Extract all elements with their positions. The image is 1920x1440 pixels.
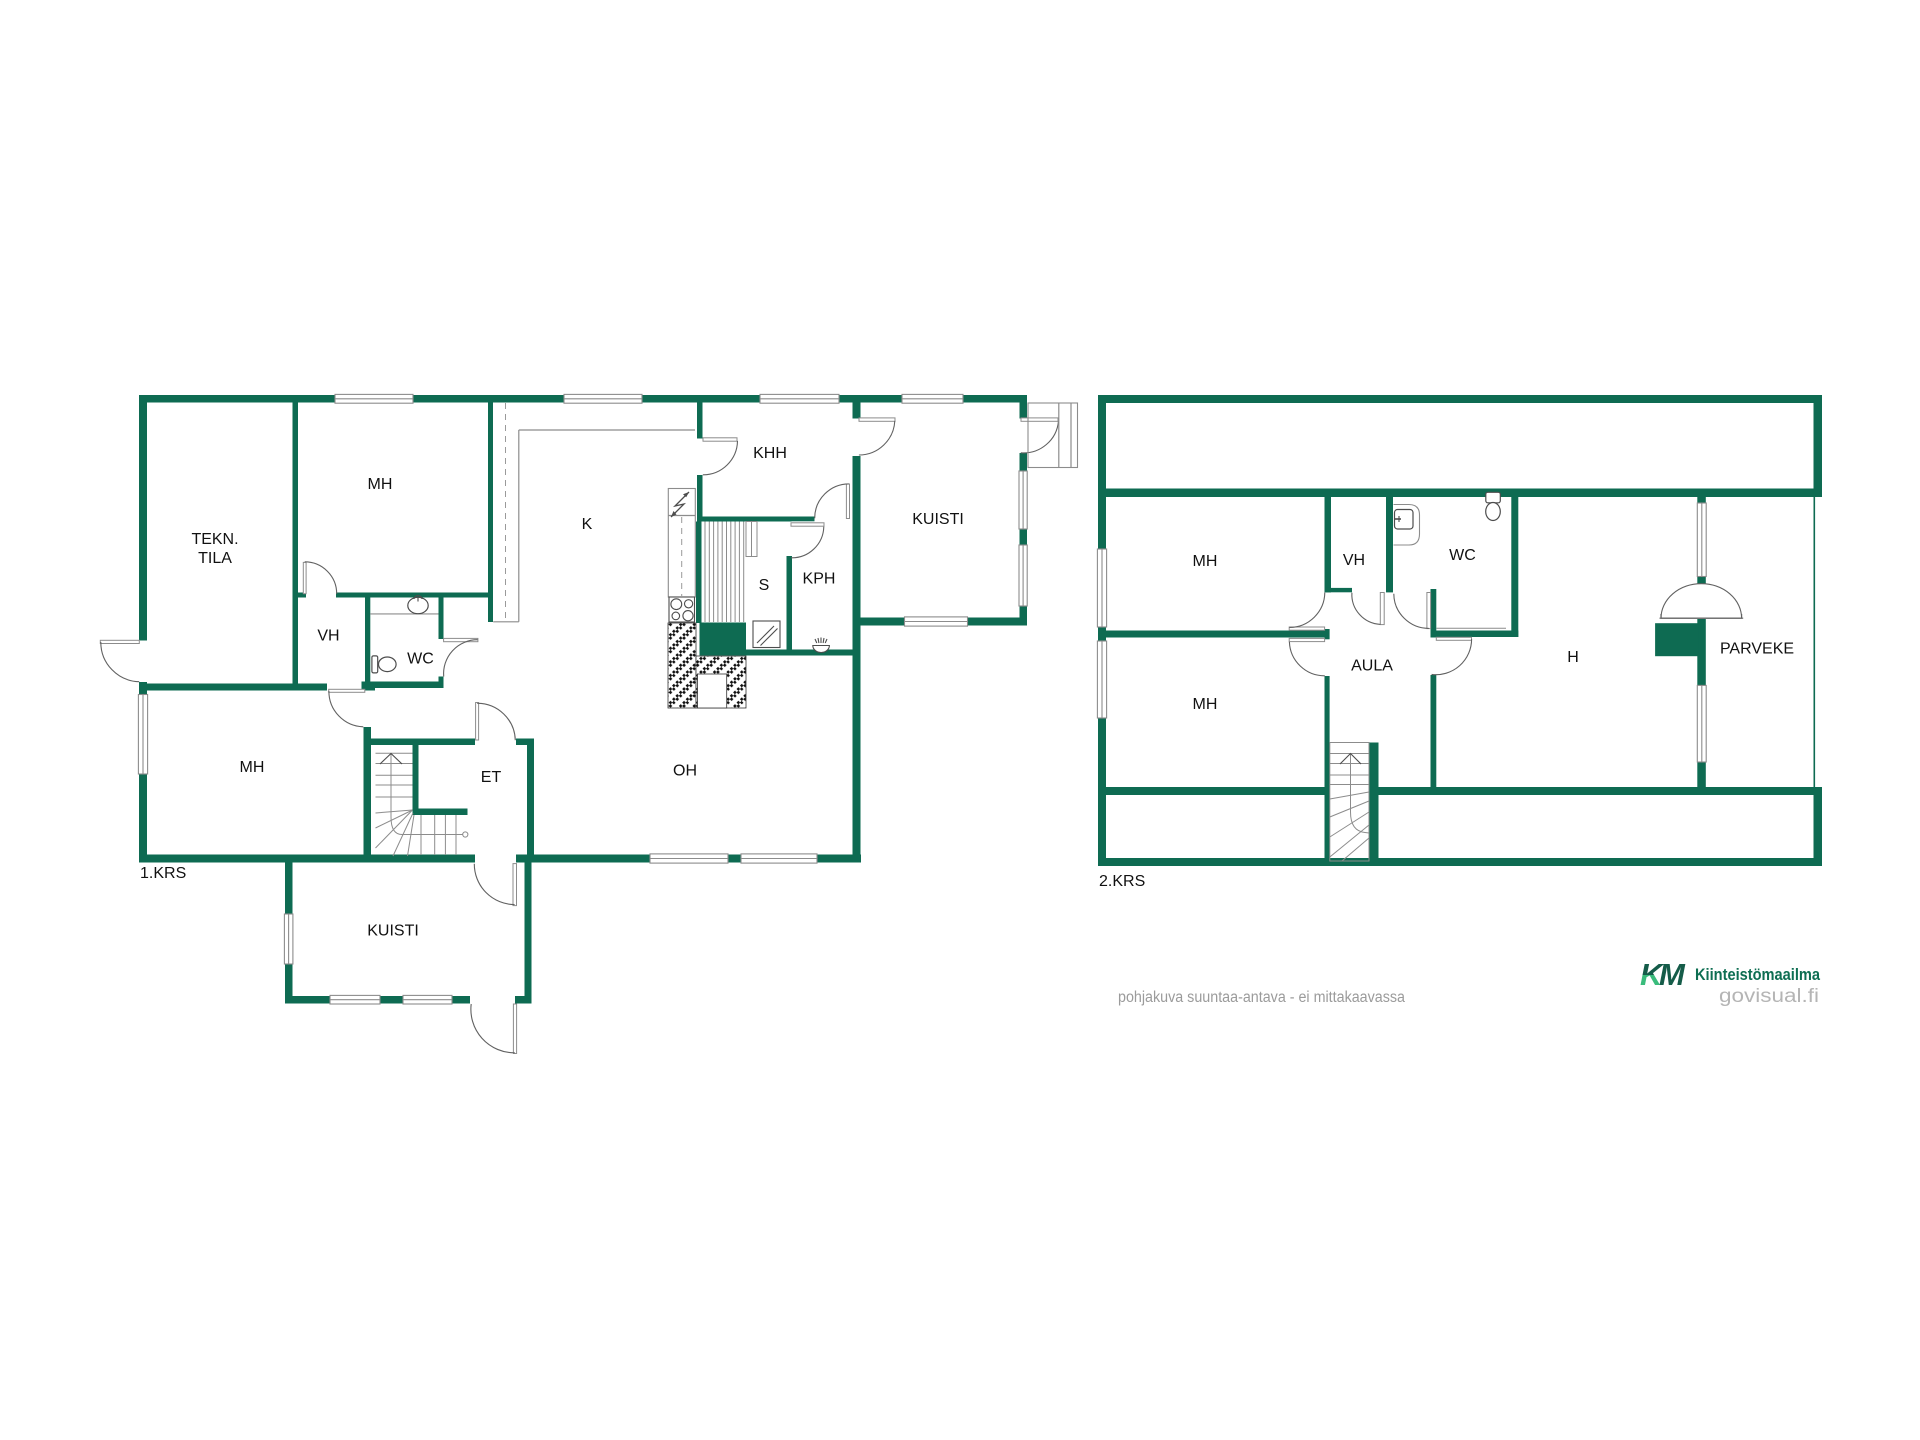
svg-text:WC: WC bbox=[1449, 547, 1476, 564]
svg-text:KUISTI: KUISTI bbox=[912, 511, 964, 528]
svg-text:PARVEKE: PARVEKE bbox=[1720, 641, 1794, 658]
svg-text:govisual.fi: govisual.fi bbox=[1719, 986, 1819, 1007]
svg-text:MH: MH bbox=[368, 476, 393, 493]
svg-text:VH: VH bbox=[1343, 552, 1365, 569]
svg-text:WC: WC bbox=[407, 651, 434, 668]
svg-text:S: S bbox=[759, 577, 770, 594]
svg-text:VH: VH bbox=[317, 628, 339, 645]
svg-text:MH: MH bbox=[1193, 553, 1218, 570]
svg-text:OH: OH bbox=[673, 763, 697, 780]
svg-text:K: K bbox=[582, 516, 593, 533]
svg-text:MH: MH bbox=[1193, 696, 1218, 713]
svg-text:TEKN.: TEKN. bbox=[191, 531, 238, 548]
svg-text:Kiinteistömaailma: Kiinteistömaailma bbox=[1695, 965, 1820, 984]
svg-text:TILA: TILA bbox=[198, 550, 232, 567]
svg-text:1.KRS: 1.KRS bbox=[140, 865, 186, 882]
svg-text:pohjakuva suuntaa-antava - ei: pohjakuva suuntaa-antava - ei mittakaava… bbox=[1118, 989, 1405, 1006]
svg-text:KUISTI: KUISTI bbox=[367, 923, 419, 940]
svg-text:ET: ET bbox=[481, 769, 502, 786]
svg-text:KHH: KHH bbox=[753, 445, 787, 462]
svg-text:MH: MH bbox=[240, 759, 265, 776]
svg-text:H: H bbox=[1567, 649, 1579, 666]
svg-text:M: M bbox=[1659, 957, 1686, 992]
svg-text:KPH: KPH bbox=[803, 571, 836, 588]
svg-text:2.KRS: 2.KRS bbox=[1099, 873, 1145, 890]
svg-text:AULA: AULA bbox=[1351, 658, 1393, 675]
